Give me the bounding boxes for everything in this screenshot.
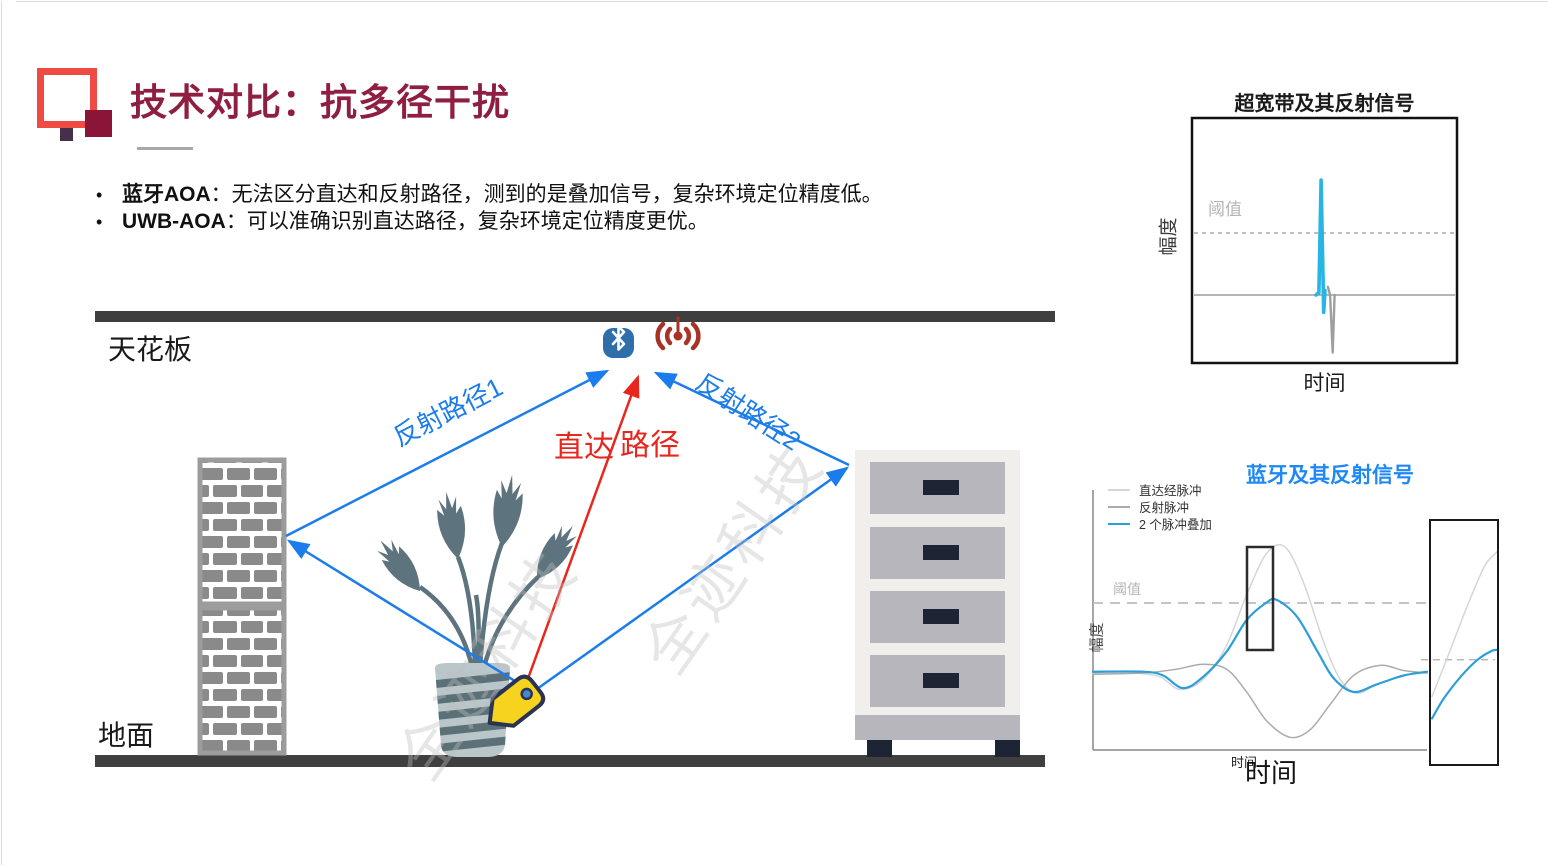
legend-swatch bbox=[1108, 506, 1130, 508]
bt-threshold-label: 阈值 bbox=[1113, 579, 1141, 599]
series-UWB直达脉冲 bbox=[1316, 180, 1325, 312]
bullet-marker: • bbox=[96, 209, 122, 235]
uwb-chart-plot bbox=[1150, 85, 1490, 405]
bullet-lead: 蓝牙AOA bbox=[122, 183, 211, 206]
multipath-scene-diagram bbox=[90, 295, 1075, 800]
highlight-box bbox=[1247, 547, 1273, 650]
bullet-text: ：可以准确识别直达路径，复杂环境定位精度更优。 bbox=[226, 210, 709, 233]
bt-chart: 蓝牙及其反射信号 直达经脉冲 反射脉冲 2 个脉冲叠加 阈值 幅度 时间 时间 bbox=[1085, 455, 1548, 800]
drawer-handle bbox=[923, 609, 959, 624]
bt-xlabel: 时间 bbox=[1245, 753, 1297, 790]
slide-top-edge bbox=[16, 1, 1548, 2]
logo-dot-square bbox=[60, 128, 73, 141]
series-UWB反射脉冲 bbox=[1328, 287, 1335, 353]
uwb-threshold-label: 阈值 bbox=[1208, 195, 1242, 220]
bt-legend: 直达经脉冲 反射脉冲 2 个脉冲叠加 bbox=[1108, 481, 1212, 532]
rf-signal-icon bbox=[658, 318, 699, 348]
inset-bg bbox=[1430, 520, 1498, 765]
ground-bar bbox=[95, 755, 1045, 767]
legend-swatch bbox=[1108, 523, 1130, 525]
legend-item: 反射脉冲 bbox=[1108, 498, 1212, 515]
ceiling-label: 天花板 bbox=[108, 328, 192, 368]
uwb-ylabel: 幅度 bbox=[1154, 217, 1181, 255]
bullet-text: ：无法区分直达和反射路径，测到的是叠加信号，复杂环境定位精度低。 bbox=[211, 183, 883, 206]
bullet-list: • 蓝牙AOA：无法区分直达和反射路径，测到的是叠加信号，复杂环境定位精度低。 … bbox=[96, 182, 956, 236]
bullet-item: • UWB-AOA：可以准确识别直达路径，复杂环境定位精度更优。 bbox=[96, 209, 956, 235]
ground-label: 地面 bbox=[98, 714, 154, 754]
drawer-handle bbox=[923, 545, 959, 560]
page-title: 技术对比：抗多径干扰 bbox=[130, 72, 510, 126]
uwb-chart: 超宽带及其反射信号 阈值 幅度 时间 bbox=[1150, 85, 1490, 405]
ceiling-bar bbox=[95, 311, 1055, 322]
bullet-marker: • bbox=[96, 182, 122, 208]
legend-label: 2 个脉冲叠加 bbox=[1139, 514, 1212, 533]
slide-left-edge bbox=[1, 1, 2, 865]
uwb-xlabel: 时间 bbox=[1192, 367, 1457, 397]
series-2 个脉冲叠加 bbox=[1093, 599, 1427, 692]
slide: { "header": { "title": "技术对比：抗多径干扰", "ti… bbox=[0, 0, 1548, 866]
title-underline bbox=[137, 147, 193, 150]
bt-ylabel: 幅度 bbox=[1086, 622, 1107, 652]
legend-item: 2 个脉冲叠加 bbox=[1108, 515, 1212, 532]
brick-wall bbox=[200, 460, 284, 753]
legend-item: 直达经脉冲 bbox=[1108, 481, 1212, 498]
bluetooth-icon bbox=[603, 327, 634, 359]
cabinet bbox=[855, 450, 1020, 757]
drawer-handle bbox=[923, 673, 959, 688]
legend-swatch bbox=[1108, 489, 1130, 491]
direct-path-label-a: 直达 bbox=[554, 422, 614, 466]
logo-corner-square bbox=[85, 110, 112, 137]
chart-frame bbox=[1192, 118, 1457, 363]
bullet-lead: UWB-AOA bbox=[122, 210, 226, 233]
drawer-handle bbox=[923, 480, 959, 495]
series-反射脉冲 bbox=[1093, 664, 1427, 737]
direct-path-label-b: 路径 bbox=[620, 420, 680, 464]
bullet-item: • 蓝牙AOA：无法区分直达和反射路径，测到的是叠加信号，复杂环境定位精度低。 bbox=[96, 182, 956, 208]
